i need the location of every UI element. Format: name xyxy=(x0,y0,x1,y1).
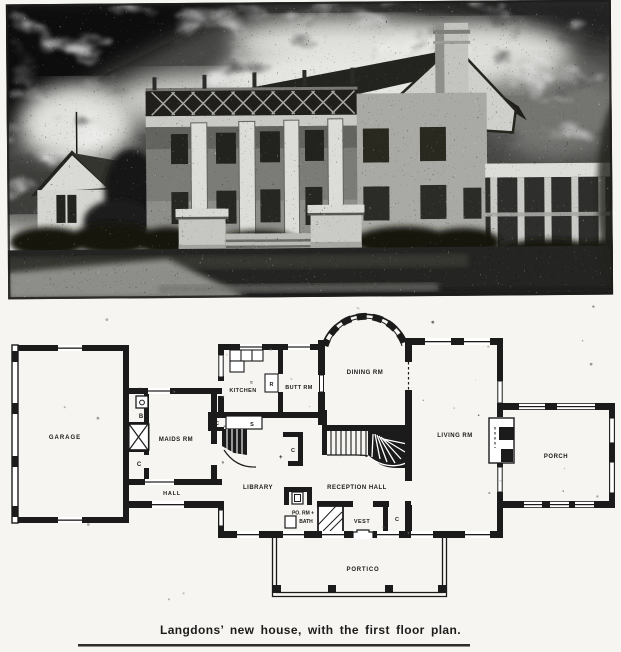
svg-text:C: C xyxy=(395,517,399,523)
svg-text:LIVING RM: LIVING RM xyxy=(437,433,473,439)
svg-text:R: R xyxy=(270,382,274,388)
svg-text:≈: ≈ xyxy=(250,380,253,386)
svg-text:PORCH: PORCH xyxy=(544,454,568,460)
svg-text:HALL: HALL xyxy=(163,491,181,497)
svg-text:BUTT RM: BUTT RM xyxy=(285,385,313,391)
svg-text:GARAGE: GARAGE xyxy=(49,435,81,441)
svg-text:MAIDS RM: MAIDS RM xyxy=(159,437,193,443)
svg-text:PORTICO: PORTICO xyxy=(347,567,380,573)
svg-text:LIBRARY: LIBRARY xyxy=(243,485,273,491)
svg-text:B: B xyxy=(139,414,144,420)
svg-text:+: + xyxy=(279,455,283,461)
svg-text:RECEPTION HALL: RECEPTION HALL xyxy=(327,485,387,491)
svg-text:BATH: BATH xyxy=(299,519,313,525)
svg-text:S: S xyxy=(250,422,254,428)
svg-text:C: C xyxy=(291,448,295,454)
svg-text:VEST: VEST xyxy=(354,519,371,525)
svg-text:C: C xyxy=(137,462,142,468)
svg-text:C: C xyxy=(215,421,219,427)
svg-text:KITCHEN: KITCHEN xyxy=(229,388,256,394)
svg-text:DINING RM: DINING RM xyxy=(347,370,384,376)
